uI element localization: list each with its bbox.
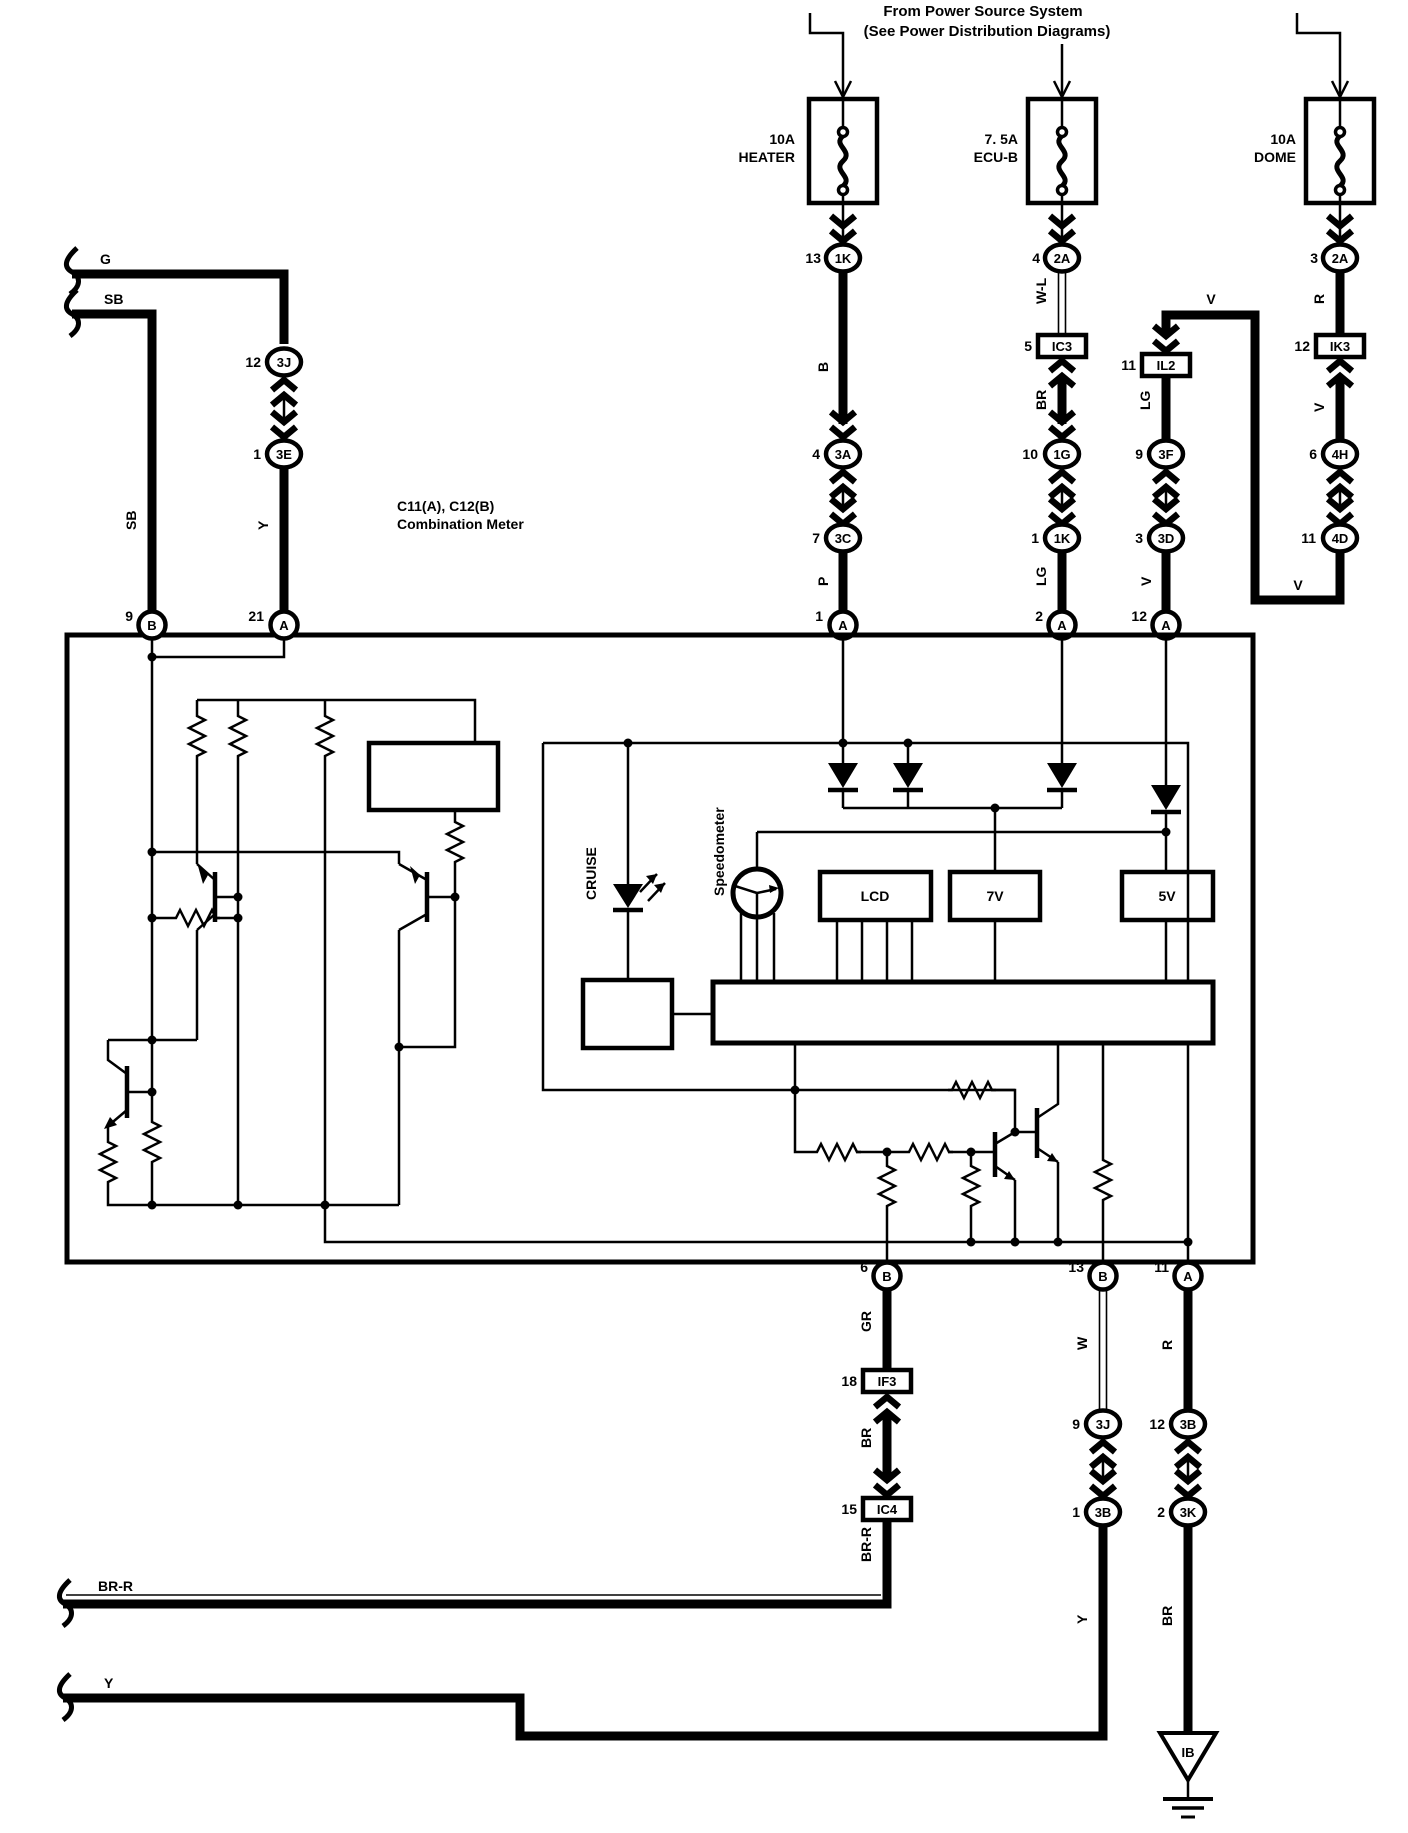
fuse-name: HEATER	[738, 149, 795, 165]
connector-pin: 7	[812, 530, 820, 546]
resistor-icon	[813, 1144, 861, 1160]
wire-label-y-bot: Y	[104, 1675, 114, 1691]
connector-code: IL2	[1157, 358, 1176, 373]
connector-code: 3J	[277, 355, 291, 370]
connector-pin: 21	[248, 608, 264, 624]
left-feeds: G SB SB 3J 12 3E 1 Y	[66, 248, 301, 614]
connector-code: IC4	[877, 1502, 898, 1517]
wire-label-br: BR	[1033, 390, 1049, 410]
connector-code: A	[279, 618, 289, 633]
power-source-note-line2: (See Power Distribution Diagrams)	[864, 23, 1111, 40]
connector-code: A	[1161, 618, 1171, 633]
connector-pin: 9	[125, 608, 133, 624]
connector-pin: 11	[1301, 530, 1316, 546]
resistor-icon	[879, 1162, 895, 1210]
resistor-icon	[963, 1162, 979, 1210]
wire-label-br: BR	[858, 1428, 874, 1448]
connector-code: 3K	[1180, 1505, 1197, 1520]
connector-code: 3F	[1158, 447, 1173, 462]
transistor-icon	[399, 864, 455, 930]
connector-code: B	[882, 1269, 891, 1284]
connector-pin: 12	[1294, 338, 1310, 354]
wire-label-br-3k: BR	[1159, 1606, 1175, 1626]
connector-pin: 6	[1309, 446, 1317, 462]
connector-code: IF3	[878, 1374, 897, 1389]
driver-box	[583, 980, 672, 1048]
wire-label-v: V	[1138, 576, 1154, 586]
resistor-icon	[230, 712, 246, 760]
connector-pin: 9	[1135, 446, 1143, 462]
wire-label-wl: W-L	[1033, 277, 1049, 304]
connector-pin: 4	[1032, 250, 1040, 266]
wire-label-r: R	[1311, 294, 1327, 304]
meter-internal-circuit-left	[100, 639, 1188, 1242]
connector-code: IK3	[1330, 339, 1350, 354]
column-heater: 1K 13 B 3A 4 3C 7 P A 1	[805, 245, 860, 639]
connector-code: IC3	[1052, 339, 1072, 354]
wire-label-lg: LG	[1137, 390, 1153, 410]
wire-label-lg: LG	[1033, 566, 1049, 586]
connector-code: 1K	[1054, 531, 1071, 546]
connector-code: B	[1098, 1269, 1107, 1284]
wire-brr	[63, 1520, 887, 1604]
connector-pin: 3	[1135, 530, 1143, 546]
meter-connector-codes: C11(A), C12(B)	[397, 498, 494, 514]
resistor-icon	[317, 712, 333, 760]
fuse-rating: 7. 5A	[985, 131, 1018, 147]
transistor-icon	[197, 864, 238, 930]
transistor-icon	[104, 1040, 152, 1129]
column-ecub: 2A 4 W-L IC3 5 BR 1G 10 1K 1 LG A 2	[1022, 245, 1086, 639]
connector-code: 2A	[1332, 251, 1349, 266]
transistor-icon	[1015, 1043, 1058, 1162]
wire-label-sb: SB	[104, 291, 123, 307]
wire-label-b: B	[815, 362, 831, 372]
connector-pin: 13	[1068, 1259, 1084, 1275]
connector-pin: 2	[1157, 1504, 1165, 1520]
connector-pin: 1	[1072, 1504, 1080, 1520]
fuse-name: ECU-B	[974, 149, 1018, 165]
connector-code: A	[838, 618, 848, 633]
connector-code: B	[147, 618, 156, 633]
resistor-icon	[447, 818, 463, 866]
connector-pin: 15	[841, 1501, 857, 1517]
resistor-icon	[905, 1144, 953, 1160]
ground-ib: IB	[1160, 1733, 1216, 1817]
wire-label-w: W	[1074, 1336, 1090, 1350]
column-dome: 2A 3 R IK3 12 V 4H 6 4D 11	[1294, 245, 1364, 552]
wire-label-brr-h: BR-R	[98, 1578, 133, 1594]
circuit-bus-box	[713, 982, 1213, 1043]
wire-label-y: Y	[255, 520, 271, 530]
connector-pin: 4	[812, 446, 820, 462]
fuse-ecub: 7. 5A ECU-B	[974, 44, 1096, 241]
ground-code: IB	[1182, 1745, 1195, 1760]
connector-pin: 3	[1310, 250, 1318, 266]
fuse-name: DOME	[1254, 149, 1296, 165]
heater-feed-wire	[810, 13, 843, 94]
connector-pin: 9	[1072, 1416, 1080, 1432]
resistor-icon	[100, 1138, 116, 1186]
resistor-icon	[1095, 1156, 1111, 1204]
regulator-7v-label: 7V	[986, 888, 1004, 904]
diode-icon	[1151, 785, 1181, 832]
wire-label-v-4d: V	[1293, 577, 1303, 593]
cruise-label: CRUISE	[583, 847, 599, 900]
connector-code: 1K	[835, 251, 852, 266]
regulator-5v-label: 5V	[1158, 888, 1176, 904]
wire-label-y-3b: Y	[1074, 1614, 1090, 1624]
combination-meter-wiring-diagram: From Power Source System (See Power Dist…	[0, 0, 1408, 1828]
wire-label-brr-v: BR-R	[858, 1527, 874, 1562]
transistor-icon	[995, 1132, 1015, 1180]
wire-label-g: G	[100, 251, 111, 267]
connector-code: 3B	[1095, 1505, 1112, 1520]
fuse-heater: 10A HEATER	[738, 13, 877, 241]
resistor-icon	[144, 1118, 160, 1166]
connector-pin: 1	[815, 608, 823, 624]
power-source-note-line1: From Power Source System	[883, 3, 1082, 20]
wire-label-v-top: V	[1206, 291, 1216, 307]
diode-icon	[828, 743, 858, 808]
connector-pin: 12	[1149, 1416, 1165, 1432]
wire-label-p: P	[815, 577, 831, 586]
meter-internal-circuit-right	[795, 1043, 1188, 1262]
lcd-label: LCD	[861, 888, 890, 904]
connector-code: 3D	[1158, 531, 1175, 546]
connector-pin: 11	[1121, 357, 1136, 373]
wire-label-sb-v: SB	[123, 511, 139, 530]
diode-icon	[893, 743, 923, 808]
connector-pin: 2	[1035, 608, 1043, 624]
connector-code: 3J	[1096, 1417, 1110, 1432]
wiring-diagram-page: From Power Source System (See Power Dist…	[0, 0, 1408, 1828]
connector-code: A	[1057, 618, 1067, 633]
connector-code: 3B	[1180, 1417, 1197, 1432]
connector-pin: 1	[253, 446, 261, 462]
connector-code: 3C	[835, 531, 852, 546]
connector-code: 2A	[1054, 251, 1071, 266]
wire-label-v: V	[1311, 402, 1327, 412]
wire-g	[72, 274, 284, 344]
meter-outline	[67, 635, 1253, 1262]
meter-internal-circuit-center: CRUISE Speedometer LCD 7V	[543, 639, 1213, 1090]
connector-pin: 13	[805, 250, 821, 266]
connector-code: 3E	[276, 447, 292, 462]
connector-pin: 5	[1024, 338, 1032, 354]
fuse-dome: 10A DOME	[1254, 13, 1374, 241]
connector-pin: 12	[1131, 608, 1147, 624]
fuse-rating: 10A	[769, 131, 795, 147]
wire-sb	[72, 314, 152, 614]
connector-code: 4H	[1332, 447, 1349, 462]
meter-name: Combination Meter	[397, 516, 524, 532]
resistor-icon	[189, 712, 205, 760]
fuse-rating: 10A	[1270, 131, 1296, 147]
connector-pin: 10	[1022, 446, 1038, 462]
connector-pin: 11	[1154, 1259, 1169, 1275]
power-source-note: From Power Source System (See Power Dist…	[864, 3, 1111, 40]
connector-pin: 6	[860, 1259, 868, 1275]
diode-icon	[1047, 763, 1077, 808]
internal-module-box	[369, 743, 498, 810]
connector-code: 4D	[1332, 531, 1349, 546]
wire-label-r: R	[1159, 1340, 1175, 1350]
bottom-wiring: GR IF3 18 BR IC4 15 BR-R BR-R W 3J 9 3B …	[59, 1290, 1216, 1817]
connector-code: 1G	[1053, 447, 1070, 462]
wire-y-bottom	[63, 1526, 1103, 1736]
connector-pin: 12	[245, 354, 261, 370]
connector-code: 3A	[835, 447, 852, 462]
connector-pin: 18	[841, 1373, 857, 1389]
speedometer-icon	[733, 832, 781, 982]
cruise-led-icon	[613, 743, 665, 980]
connector-pin: 1	[1031, 530, 1039, 546]
connector-code: A	[1183, 1269, 1193, 1284]
speedometer-label: Speedometer	[711, 807, 727, 896]
wire-label-gr: GR	[858, 1311, 874, 1332]
